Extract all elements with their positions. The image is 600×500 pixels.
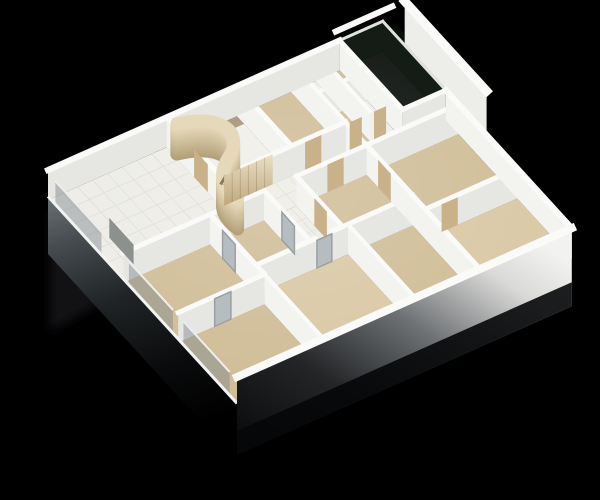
door <box>374 106 386 139</box>
floor-plan-3d-render <box>0 0 600 500</box>
door <box>317 234 332 268</box>
render-stage <box>0 0 600 500</box>
door <box>350 117 362 150</box>
